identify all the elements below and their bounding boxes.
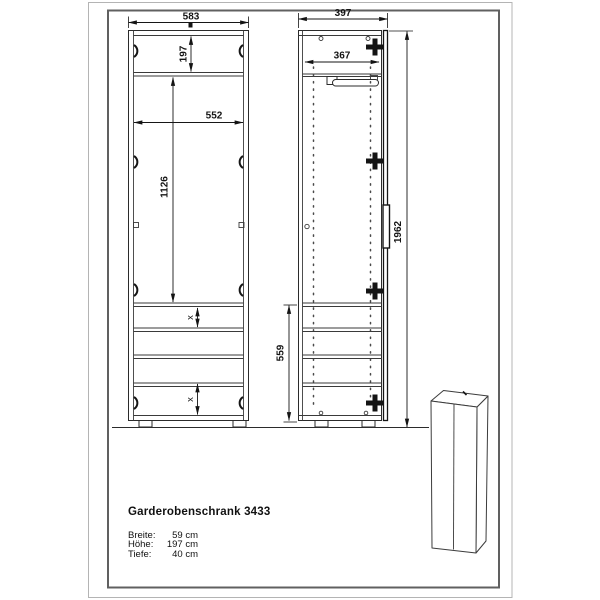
technical-drawing: 583 197 552 1126 x x (0, 0, 600, 600)
iso-door-split-line (454, 404, 455, 550)
foot (362, 421, 375, 428)
spec-label-tiefe: Tiefe: (128, 550, 166, 559)
top-connector-mark (189, 23, 193, 28)
dim-top-section-height: 197 (179, 45, 190, 62)
product-specs: Breite:59 cm Höhe:197 cm Tiefe:40 cm (128, 531, 270, 559)
front-cabinet-outline (129, 31, 249, 421)
dim-depth: 397 (335, 8, 352, 19)
side-cabinet-outline (299, 31, 382, 421)
door-handle (383, 205, 390, 248)
front-view (129, 23, 249, 427)
dim-lower-section-height: 559 (276, 344, 287, 361)
product-title: Garderobenschrank 3433 (128, 506, 270, 518)
foot (315, 421, 328, 428)
spec-value-tiefe: 40 cm (166, 550, 198, 559)
clothes-rail (333, 80, 379, 87)
foot (139, 421, 152, 428)
side-view (299, 31, 390, 428)
dim-shelf-gap-lower: x (185, 397, 196, 402)
dim-middle-section-height: 1126 (160, 176, 171, 198)
dim-shelf-gap-upper: x (185, 315, 196, 320)
dim-interior-depth: 367 (334, 51, 351, 62)
spec-row-tiefe: Tiefe:40 cm (128, 550, 270, 559)
drawing-sheet: 583 197 552 1126 x x (0, 0, 600, 600)
iso-thumbnail (431, 391, 488, 554)
foot (233, 421, 246, 428)
dim-width: 583 (183, 12, 200, 23)
dim-total-height: 1962 (393, 220, 404, 243)
dim-interior-width: 552 (206, 111, 223, 122)
iso-side-face (476, 396, 488, 553)
product-info: Garderobenschrank 3433 Breite:59 cm Höhe… (128, 506, 270, 559)
